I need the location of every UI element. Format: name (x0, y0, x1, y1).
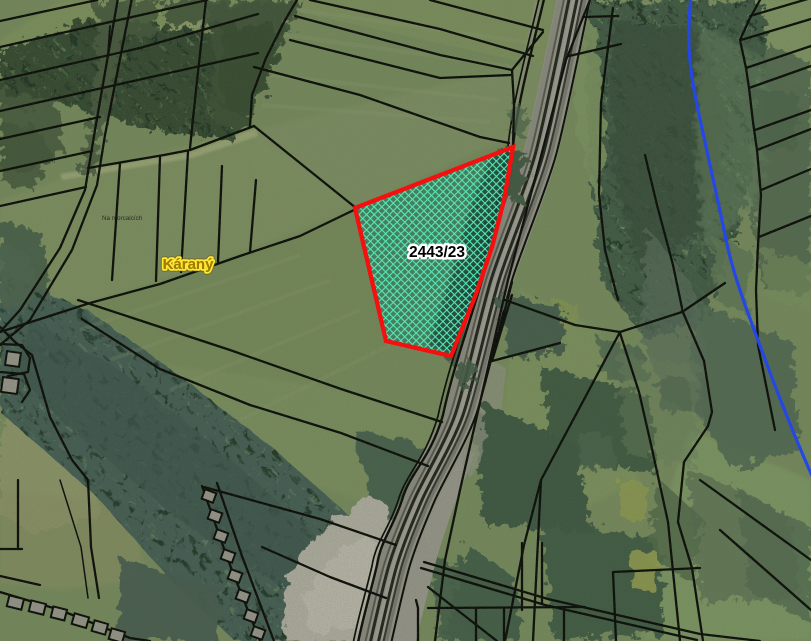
svg-text:2443/23: 2443/23 (409, 244, 465, 261)
svg-text:Na morcalcích: Na morcalcích (102, 215, 143, 222)
svg-text:Káraný: Káraný (163, 256, 215, 273)
